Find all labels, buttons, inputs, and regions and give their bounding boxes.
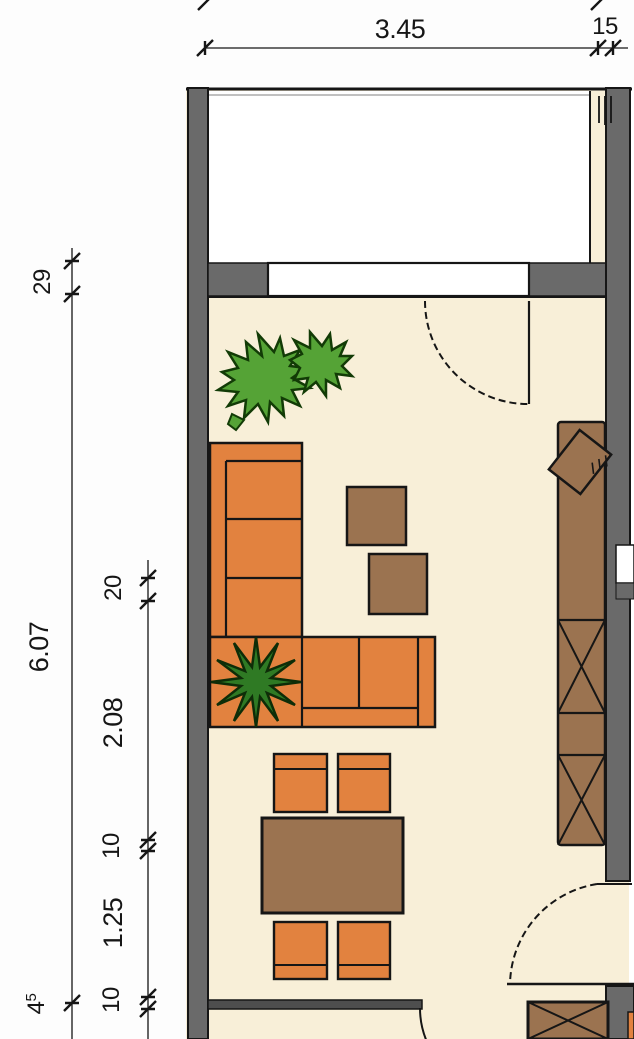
sideboard-wardrobe (549, 422, 614, 845)
dining-table (262, 818, 403, 913)
dim-label-gap-a: 10 (98, 833, 125, 859)
dim-label-wall: 15 (592, 13, 618, 40)
left-wall (188, 88, 208, 1039)
dim-label-offset: 20 (100, 575, 127, 601)
dim-label-band: 29 (29, 269, 56, 295)
side-table-2 (369, 554, 427, 614)
dim-label-sofa: 2.08 (98, 698, 128, 749)
dim-label-dining: 1.25 (98, 898, 128, 949)
cut-off-furniture (628, 1012, 634, 1039)
dining-chair (274, 922, 327, 979)
right-wall-window (616, 545, 634, 583)
balcony (186, 89, 632, 263)
bottom-interior-wall (208, 1000, 422, 1009)
dim-label-width: 3.45 (375, 14, 426, 44)
dim-label-gap-b: 10 (98, 987, 125, 1013)
right-wall (606, 88, 630, 881)
dining-chair (338, 754, 390, 812)
right-wall-pier (616, 583, 634, 599)
floor-plan-canvas: 3.45 15 29 6.07 45 20 2.08 10 1.25 10 (0, 0, 634, 1039)
side-table-1 (347, 487, 406, 545)
balcony-window (268, 263, 529, 296)
dim-sill-main: 4 (23, 1001, 50, 1014)
dining-chair (338, 922, 390, 979)
floor-plan: 3.45 15 29 6.07 45 20 2.08 10 1.25 10 (0, 0, 634, 1039)
dim-sill-sup: 5 (23, 993, 40, 1001)
dim-label-total: 6.07 (24, 622, 54, 673)
dining-chair (274, 754, 327, 812)
sofa-vertical (210, 443, 302, 637)
balcony-floor (208, 91, 590, 263)
